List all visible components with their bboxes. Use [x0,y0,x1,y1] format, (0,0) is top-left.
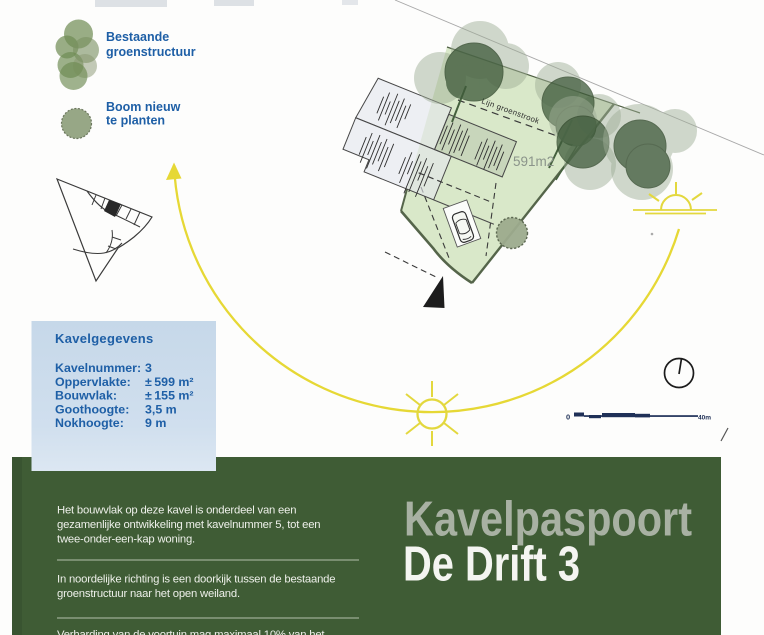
svg-text:te planten: te planten [106,114,165,128]
svg-text:groenstructuur: groenstructuur [106,45,196,59]
svg-text:Verharding van de voortuin mag: Verharding van de voortuin mag maximaal … [57,629,325,635]
svg-text:3: 3 [145,361,152,375]
svg-text:9 m: 9 m [145,416,166,430]
svg-text:De Drift 3: De Drift 3 [403,538,580,592]
svg-text:0: 0 [566,413,570,422]
svg-text:gezamenlijke ontwikkeling met: gezamenlijke ontwikkeling met kavelnumme… [57,519,320,531]
svg-text:Kavelgegevens: Kavelgegevens [55,331,154,346]
svg-text:In noordelijke richting is een: In noordelijke richting is een doorkijk … [57,574,335,586]
svg-text:± 155 m²: ± 155 m² [145,389,194,403]
svg-text:twee-onder-een-kap woning.: twee-onder-een-kap woning. [57,534,195,546]
svg-text:Kavelnummer:: Kavelnummer: [55,361,141,375]
svg-text:groenstructuur naar het open w: groenstructuur naar het open weiland. [57,588,240,600]
svg-text:40m: 40m [698,415,711,422]
svg-text:Goothoogte:: Goothoogte: [55,402,129,416]
svg-text:3,5 m: 3,5 m [145,402,177,416]
svg-text:± 599 m²: ± 599 m² [145,375,194,389]
svg-text:Nokhoogte:: Nokhoogte: [55,416,124,430]
svg-text:Het bouwvlak op deze kavel is: Het bouwvlak op deze kavel is onderdeel … [57,505,296,517]
svg-text:591m2: 591m2 [513,154,554,169]
svg-text:Bouwvlak:: Bouwvlak: [55,389,117,403]
svg-text:Oppervlakte:: Oppervlakte: [55,375,131,389]
svg-text:Bestaande: Bestaande [106,30,169,44]
svg-text:Boom nieuw: Boom nieuw [106,100,181,114]
